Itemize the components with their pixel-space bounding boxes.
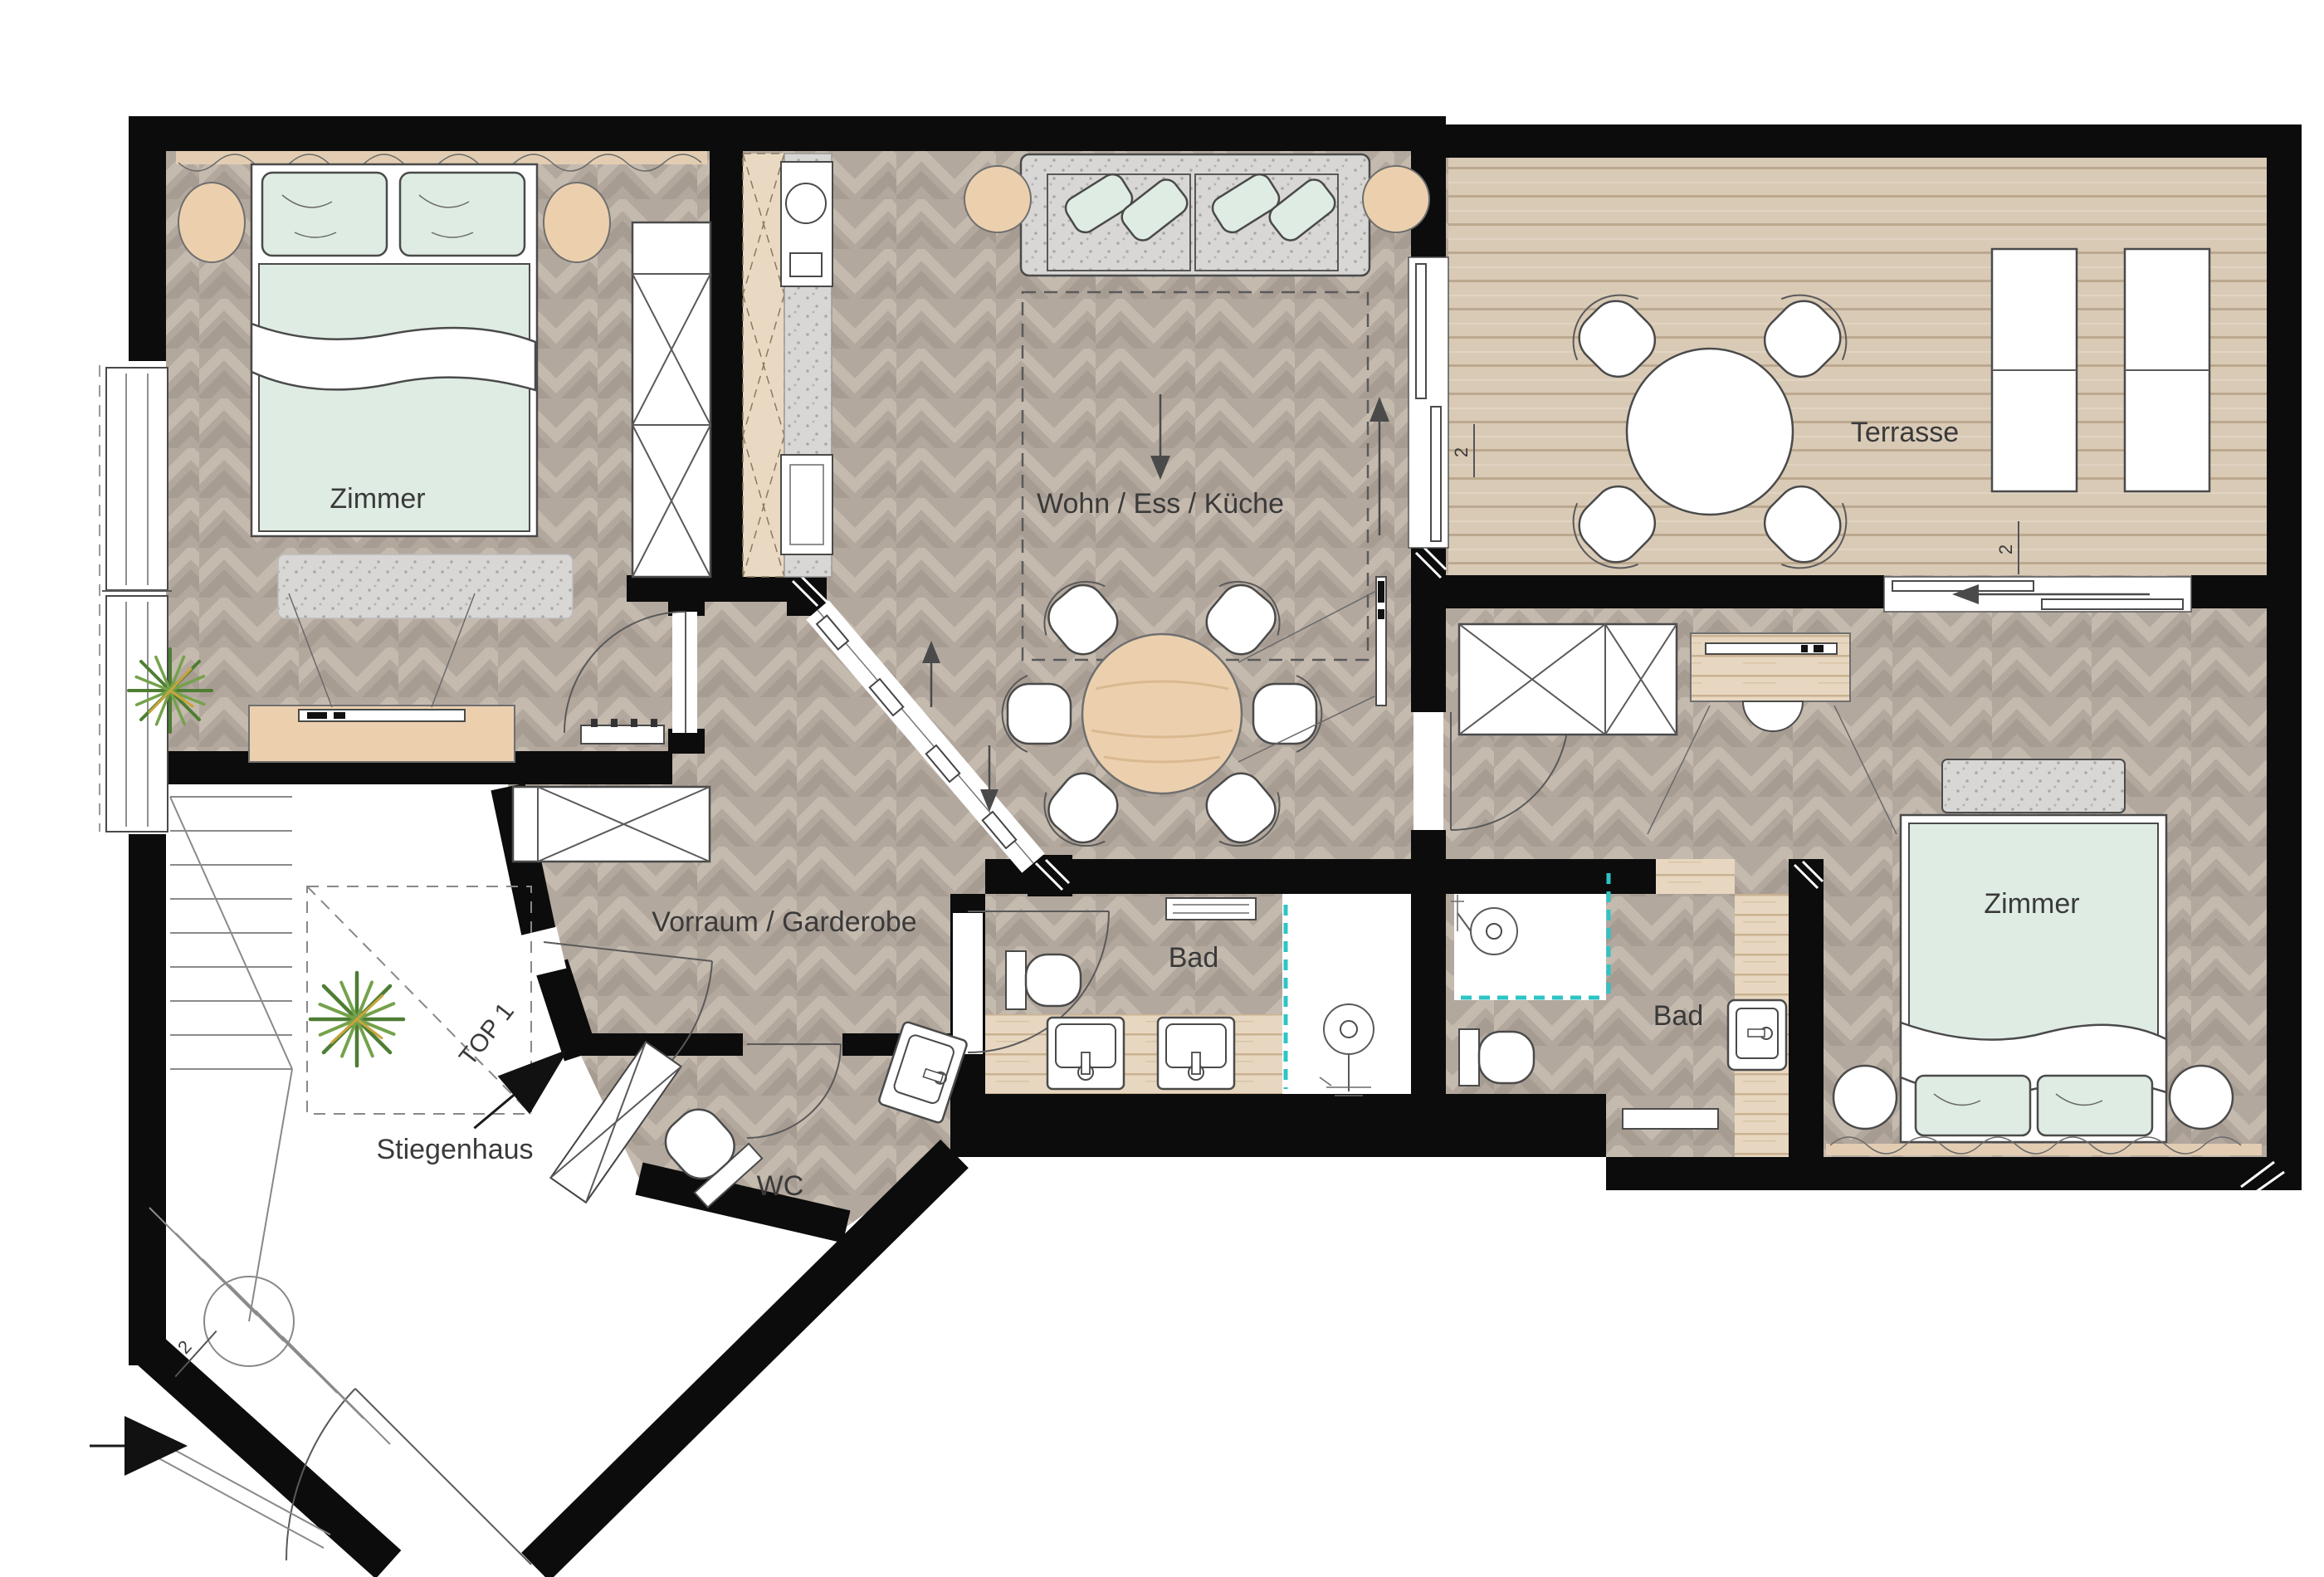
cooktop-icon <box>781 455 832 554</box>
terrace-door-bedroom <box>1884 577 2191 612</box>
kitchen-tall-cabinets <box>743 154 784 577</box>
toilet <box>1459 1029 1534 1086</box>
room-label-zimmer-left: Zimmer <box>330 483 425 515</box>
side-table <box>964 166 1031 232</box>
bench <box>1623 1109 1718 1129</box>
room-vorraum <box>513 787 710 862</box>
washbasin <box>1047 1018 1124 1089</box>
entry-direction-arrow-icon <box>124 1416 188 1476</box>
wall-bath-right-top-b <box>1735 859 1789 894</box>
dining-table <box>1082 634 1242 793</box>
wall-bath-right-east <box>1789 859 1824 1157</box>
side-table <box>1363 166 1429 232</box>
room-label-zimmer-right: Zimmer <box>1984 888 2079 920</box>
washbasin <box>1728 1000 1786 1070</box>
towel-radiator <box>1166 898 1256 920</box>
bath-right-entry-strip <box>1656 859 1735 894</box>
wall-top-terrace <box>1428 124 2302 158</box>
room-label-vorraum: Vorraum / Garderobe <box>652 906 916 938</box>
nightstand <box>1833 1066 1897 1129</box>
floor-plan-page: TOP 1 2 2 <box>0 0 2324 1577</box>
section-mark: 2 <box>1995 544 2016 554</box>
floor-plan-canvas: TOP 1 2 2 <box>0 0 2324 1577</box>
nightstand <box>178 183 245 262</box>
toilet <box>1006 951 1081 1009</box>
rug <box>278 554 573 618</box>
wall-living-east-upper <box>1411 548 1446 712</box>
vanity-counter-left-bath <box>985 1014 1282 1094</box>
nightstand <box>2170 1066 2233 1129</box>
wardrobe <box>632 222 710 577</box>
shower-floor-left-bath <box>1282 894 1411 1094</box>
kitchen-counter <box>781 154 832 577</box>
wardrobe-vorraum <box>513 787 710 862</box>
wall-bath-right-top-a <box>1446 859 1656 894</box>
wall-bottom-bath-left <box>950 1094 1606 1157</box>
wall-right <box>2267 124 2302 1190</box>
kitchen-sink-icon <box>786 183 826 223</box>
wall-bottom-right-unit <box>1606 1157 2302 1190</box>
wall-terrace-bottom-east <box>2191 575 2302 608</box>
double-bed <box>251 164 537 536</box>
window-left-facade <box>100 365 172 832</box>
room-label-wohn-ess-kueche: Wohn / Ess / Küche <box>1037 488 1284 520</box>
wall-bedroom-kitchen <box>710 149 743 577</box>
curtain-rail <box>176 151 707 164</box>
wall-left-lower <box>129 834 166 1365</box>
pillow <box>2038 1076 2152 1135</box>
pillow <box>1916 1076 2030 1135</box>
wall-living-east-lower <box>1411 830 1446 1094</box>
terrace-table <box>1627 349 1793 515</box>
room-label-bad-right: Bad <box>1653 1000 1704 1032</box>
room-label-terrasse: Terrasse <box>1851 417 1959 448</box>
wall-terrace-bottom-west <box>1446 575 1884 608</box>
section-mark: 2 <box>1451 447 1472 457</box>
washbasin <box>1158 1018 1234 1089</box>
wall-left-upper <box>129 116 166 361</box>
room-label-stiegenhaus: Stiegenhaus <box>376 1134 533 1165</box>
sofa <box>1021 154 1369 276</box>
bed-bench <box>1942 759 2125 813</box>
wardrobe-right-unit <box>1459 624 1677 735</box>
wall-top-main <box>129 116 1446 151</box>
room-label-wc: WC <box>757 1170 804 1202</box>
room-label-bad-left: Bad <box>1169 942 1219 974</box>
nightstand <box>544 183 610 262</box>
